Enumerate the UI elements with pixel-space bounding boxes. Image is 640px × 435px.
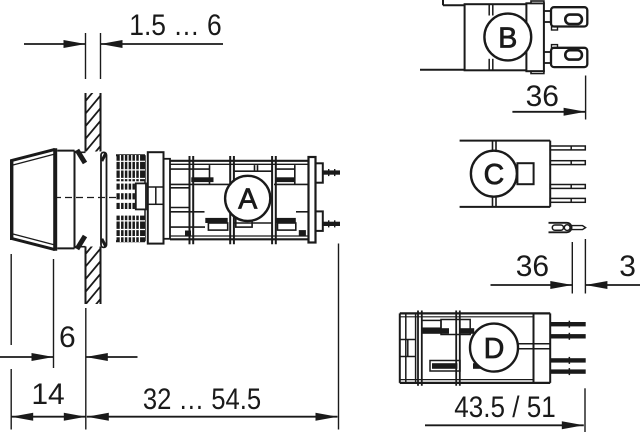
svg-text:36: 36	[516, 250, 549, 283]
svg-text:1.5 … 6: 1.5 … 6	[129, 9, 222, 42]
svg-text:43.5 / 51: 43.5 / 51	[454, 391, 556, 424]
svg-text:36: 36	[526, 80, 559, 113]
svg-text:B: B	[498, 22, 517, 54]
svg-text:32 … 54.5: 32 … 54.5	[143, 383, 261, 416]
svg-text:3: 3	[619, 250, 636, 283]
svg-text:D: D	[484, 333, 505, 365]
svg-text:C: C	[484, 159, 505, 191]
svg-text:14: 14	[31, 378, 64, 411]
svg-text:A: A	[238, 184, 257, 216]
svg-text:6: 6	[59, 321, 76, 354]
